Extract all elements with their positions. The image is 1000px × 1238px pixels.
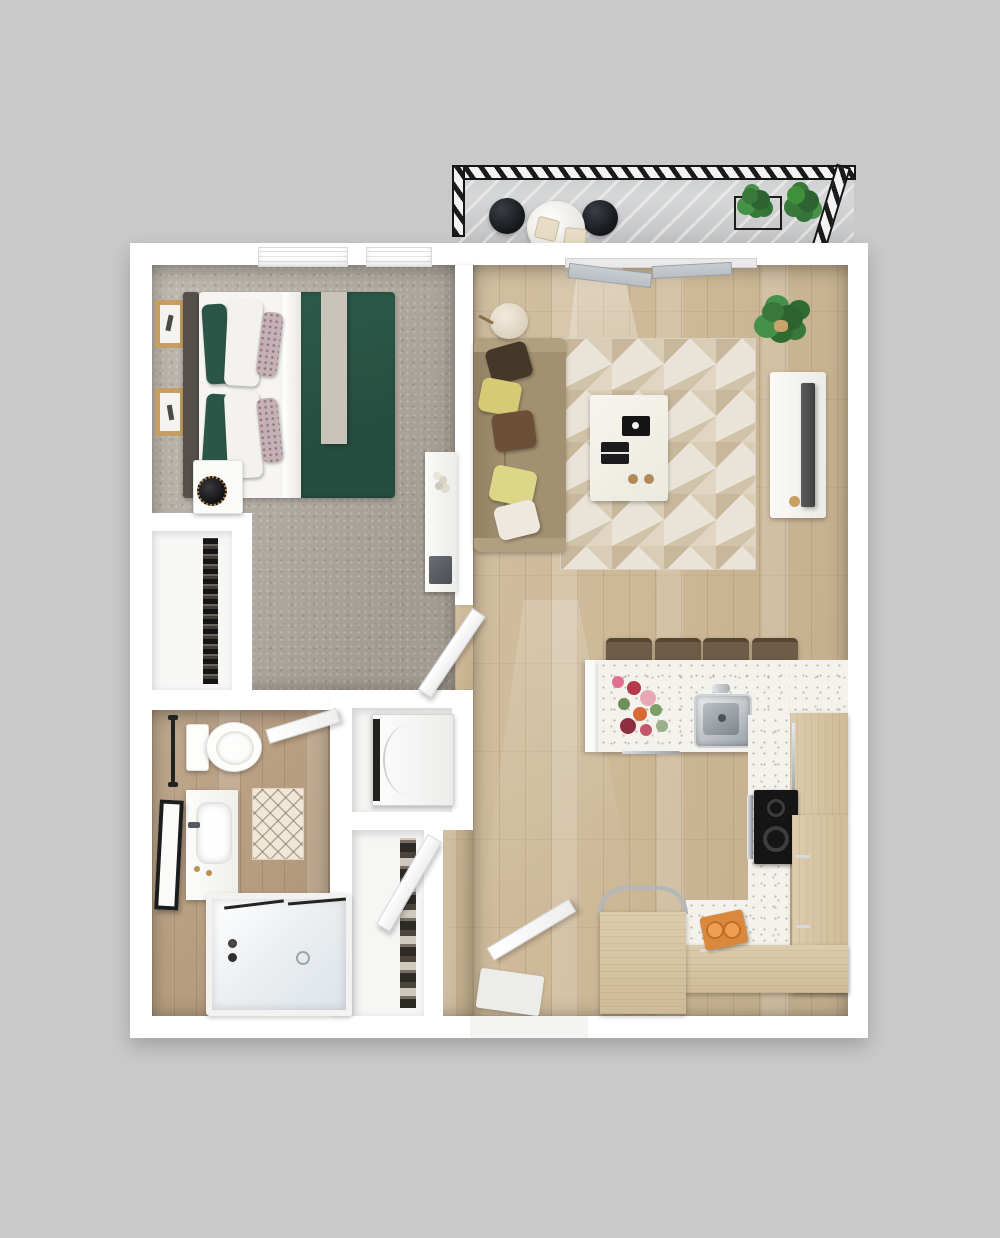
- balcony-plant-2: [787, 186, 805, 204]
- balcony-plant-1: [742, 188, 758, 204]
- dishwasher-front: [600, 912, 686, 1014]
- burner-large: [763, 826, 789, 852]
- tub-shower: [206, 893, 352, 1016]
- sofa-armrest-bottom: [474, 538, 566, 552]
- shower-glass-2: [288, 897, 346, 905]
- counter-right-extension: [790, 660, 848, 715]
- coffee-table-tray: [622, 416, 650, 436]
- wall-art-frame-1: [155, 300, 185, 348]
- wall-art-frame-2: [155, 388, 185, 436]
- vanity-faucet: [188, 822, 200, 828]
- kitchen-sink: [694, 694, 752, 748]
- bedroom-window-2: [366, 247, 432, 267]
- bar-towel-rail: [622, 751, 680, 754]
- bath-mat: [252, 788, 304, 860]
- dishwasher-handle: [598, 886, 688, 914]
- wall-laundry-right: [452, 690, 473, 830]
- breakfast-bar-end-panel: [585, 660, 599, 752]
- balcony-railing-left: [452, 165, 465, 237]
- towel-bar: [171, 718, 175, 784]
- bed-sheet-fold: [283, 292, 301, 498]
- shower-glass-1: [224, 899, 284, 909]
- desk-laptop: [429, 556, 452, 584]
- entry-threshold: [470, 1016, 588, 1038]
- balcony-planter-box: [734, 196, 782, 230]
- coaster-2: [644, 474, 654, 484]
- refrigerator-cabinet: [790, 713, 848, 815]
- tub-drain: [296, 951, 310, 965]
- wall-bedroom-living-divider: [455, 265, 473, 605]
- toilet-bowl: [206, 722, 262, 772]
- wall-laundry-bottom: [352, 812, 470, 830]
- cabinet-handle-2: [796, 925, 810, 928]
- wall-bathroom-top: [152, 690, 264, 710]
- media-console: [770, 372, 826, 518]
- balcony-chair-left: [489, 198, 525, 234]
- living-plant-pot: [774, 320, 788, 332]
- art-sketch-1: [165, 315, 173, 332]
- sofa-pillow-brown: [491, 409, 538, 452]
- burner-small: [767, 799, 785, 817]
- wardrobe-hanging-clothes: [203, 538, 218, 684]
- toilet-seat-ring: [216, 731, 254, 765]
- tray-cup: [632, 422, 639, 429]
- sink-drain: [718, 714, 726, 722]
- floor-plan: [0, 0, 1000, 1238]
- kitchen-faucet: [712, 684, 730, 693]
- bed-throw-blanket: [321, 292, 347, 444]
- balcony-chair-right: [582, 200, 618, 236]
- gold-knob-2: [206, 870, 212, 876]
- coaster-1: [628, 474, 638, 484]
- bathroom-vanity: [186, 790, 238, 900]
- coffee-table-book: [601, 442, 629, 464]
- towel-bar-cap-bottom: [168, 782, 178, 787]
- towel-bar-cap-top: [168, 715, 178, 720]
- washer-dryer-unit: [372, 714, 454, 806]
- flower-bouquet: [612, 676, 624, 688]
- washer-door-edge: [373, 719, 380, 801]
- living-plant: [762, 302, 784, 322]
- wardrobe-closet: [152, 531, 232, 690]
- bedroom-window-1: [258, 247, 348, 267]
- desk-vase-flowers: [433, 472, 441, 480]
- washer-door-arc: [383, 725, 433, 795]
- tv-panel: [801, 383, 815, 507]
- tub-faucet-cross-1: [228, 939, 237, 948]
- wall-closet-right: [232, 513, 252, 690]
- balcony-railing-top: [452, 165, 856, 180]
- art-sketch-2: [167, 405, 175, 421]
- gold-knob-1: [194, 866, 200, 872]
- speaker: [197, 476, 227, 506]
- console-decor: [789, 496, 800, 507]
- cabinet-handle-1: [796, 855, 810, 858]
- vanity-basin: [196, 802, 232, 864]
- floor-lamp-shade: [490, 303, 528, 339]
- stove-pan-rail: [747, 795, 753, 859]
